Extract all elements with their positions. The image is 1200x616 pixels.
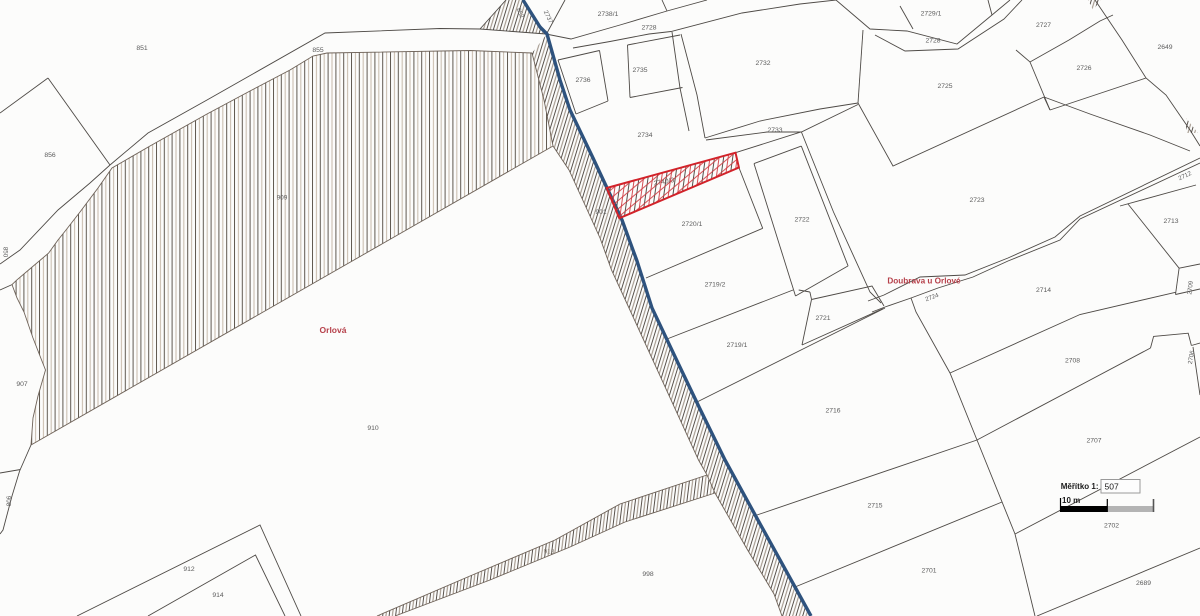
svg-text:2729/1: 2729/1	[921, 10, 942, 17]
svg-text:2726: 2726	[1076, 65, 1091, 72]
svg-text:851: 851	[136, 45, 148, 52]
svg-text:10 m: 10 m	[1062, 496, 1080, 505]
svg-text:2735: 2735	[632, 67, 647, 74]
svg-text:2722: 2722	[794, 216, 809, 223]
svg-text:2701: 2701	[921, 567, 936, 574]
svg-text:2714: 2714	[1036, 287, 1051, 294]
svg-text:901: 901	[595, 209, 607, 216]
svg-text:2728: 2728	[925, 37, 940, 44]
svg-text:2721: 2721	[815, 315, 830, 322]
svg-text:855: 855	[312, 47, 324, 54]
svg-text:Měřítko 1:: Měřítko 1:	[1061, 482, 1099, 491]
svg-text:2708: 2708	[1065, 357, 1080, 364]
svg-text:913: 913	[544, 549, 555, 556]
svg-text:2713: 2713	[1163, 218, 1178, 225]
svg-text:507: 507	[1105, 482, 1119, 492]
svg-text:912: 912	[183, 566, 195, 573]
svg-text:2719/1: 2719/1	[727, 342, 748, 349]
svg-text:2649: 2649	[1157, 44, 1172, 51]
svg-text:2732: 2732	[755, 60, 770, 67]
svg-text:2707: 2707	[1086, 437, 1101, 444]
svg-text:2728: 2728	[641, 24, 656, 31]
svg-text:Orlová: Orlová	[320, 325, 347, 335]
svg-text:910: 910	[367, 425, 379, 432]
svg-text:908: 908	[4, 496, 11, 507]
svg-text:909: 909	[277, 195, 288, 202]
svg-text:914: 914	[212, 592, 224, 599]
svg-text:2736: 2736	[575, 77, 590, 84]
svg-text:998: 998	[642, 571, 654, 578]
svg-text:2723: 2723	[969, 197, 984, 204]
svg-text:2719/2: 2719/2	[705, 281, 726, 288]
svg-text:850: 850	[1, 247, 8, 258]
svg-text:2716: 2716	[825, 407, 840, 414]
svg-text:2727: 2727	[1036, 22, 1051, 29]
svg-text:2715: 2715	[867, 502, 882, 509]
svg-text:2689: 2689	[1136, 580, 1151, 587]
svg-text:2702: 2702	[1104, 522, 1119, 529]
svg-text:856: 856	[44, 152, 56, 159]
svg-text:907: 907	[16, 381, 28, 388]
svg-text:2720/1: 2720/1	[682, 221, 703, 228]
svg-text:2725: 2725	[937, 83, 952, 90]
svg-text:Doubrava u Orlové: Doubrava u Orlové	[887, 277, 961, 286]
svg-text:2738/1: 2738/1	[598, 11, 619, 18]
svg-text:2734: 2734	[637, 132, 652, 139]
svg-text:2733: 2733	[767, 127, 782, 134]
